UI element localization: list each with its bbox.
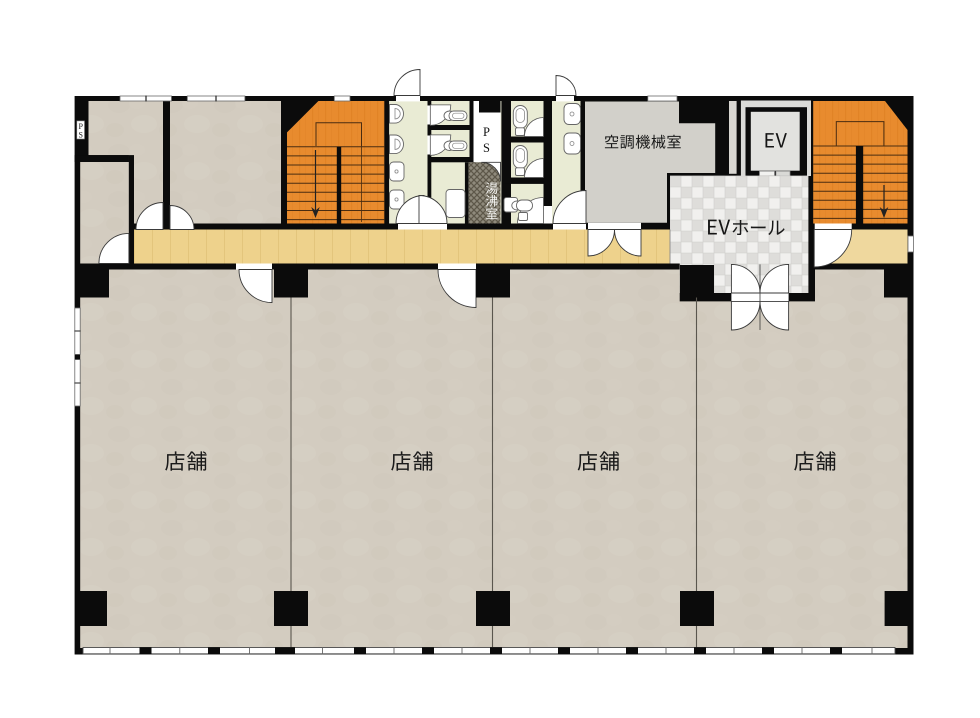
svg-text:S: S: [78, 130, 82, 139]
svg-text:S: S: [483, 141, 490, 155]
svg-text:P: P: [483, 125, 490, 139]
